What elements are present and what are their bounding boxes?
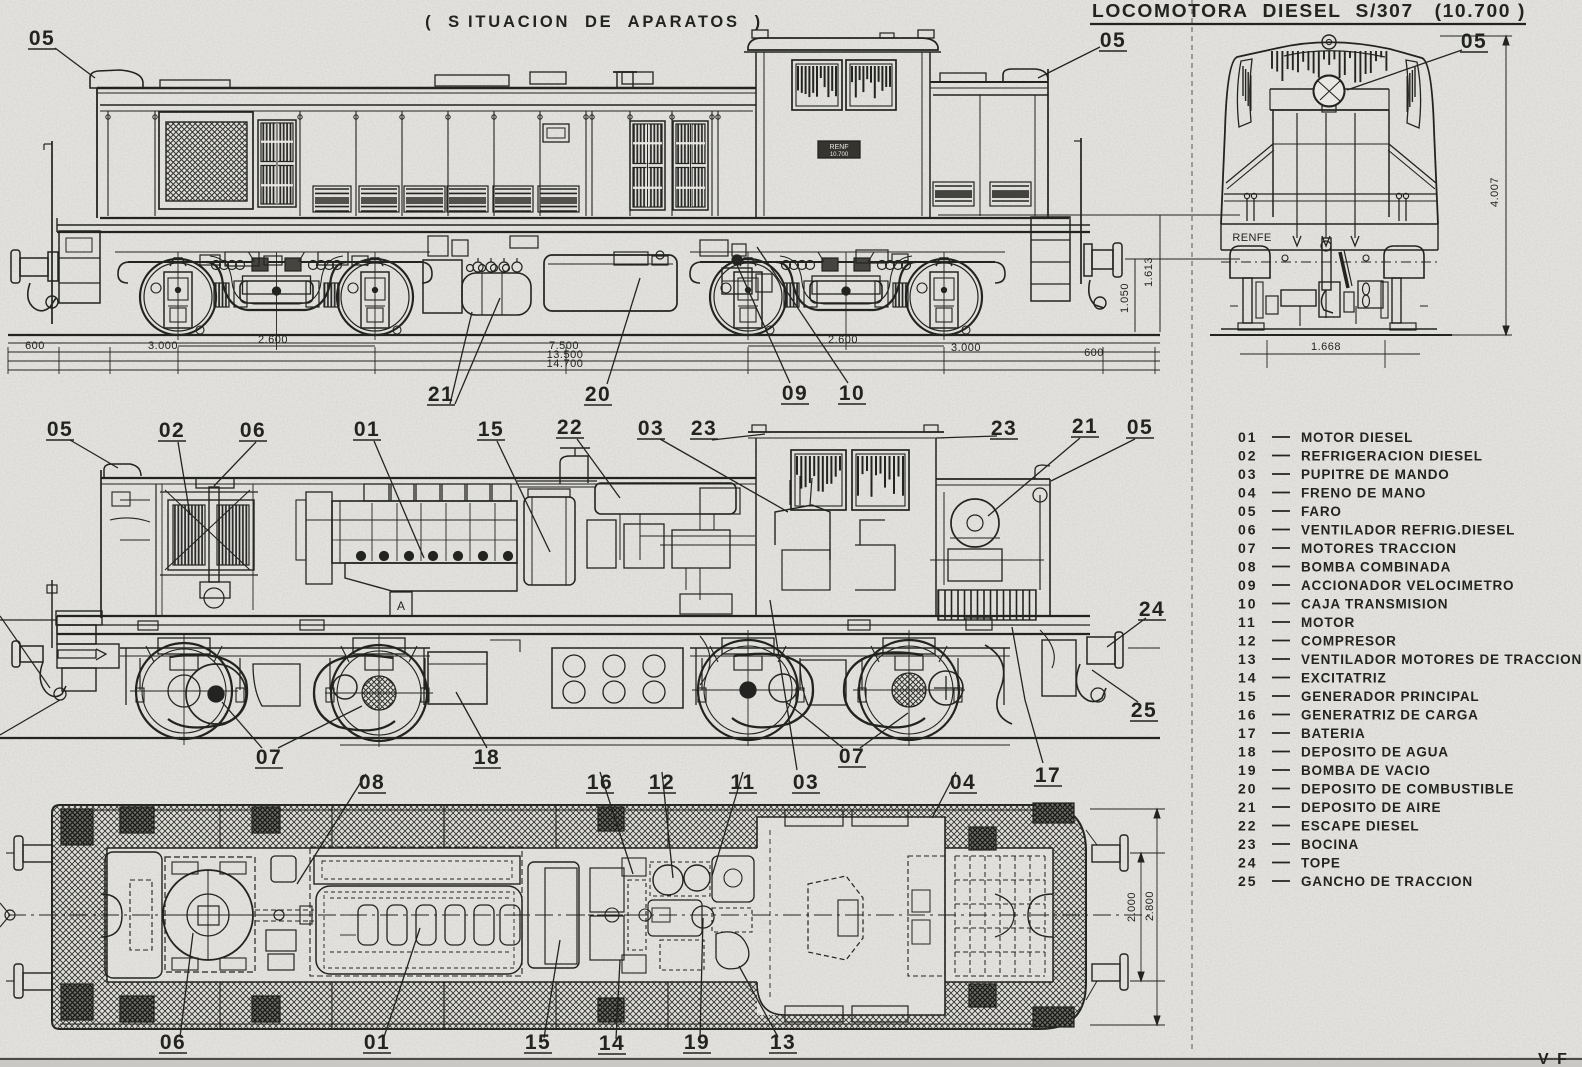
svg-text:02: 02 xyxy=(159,419,185,442)
svg-text:3.000: 3.000 xyxy=(951,342,981,354)
svg-text:17: 17 xyxy=(1035,764,1061,787)
svg-text:PUPITRE DE MANDO: PUPITRE DE MANDO xyxy=(1301,467,1450,482)
svg-text:01: 01 xyxy=(1238,429,1258,445)
svg-text:TOPE: TOPE xyxy=(1301,856,1341,871)
svg-text:12: 12 xyxy=(1238,633,1258,649)
svg-text:LOCOMOTORA DIESEL S/307 (1: LOCOMOTORA DIESEL S/307 (10.700 ) xyxy=(1092,1,1526,21)
svg-text:21: 21 xyxy=(1238,799,1258,815)
svg-text:CAJA TRANSMISION: CAJA TRANSMISION xyxy=(1301,597,1448,612)
svg-text:1.050: 1.050 xyxy=(1119,283,1131,313)
svg-text:15: 15 xyxy=(1238,688,1258,704)
svg-text:DEPOSITO DE AGUA: DEPOSITO DE AGUA xyxy=(1301,745,1449,760)
svg-text:13: 13 xyxy=(1238,651,1258,667)
svg-text:2.600: 2.600 xyxy=(258,334,288,346)
svg-text:GENERATRIZ DE CARGA: GENERATRIZ DE CARGA xyxy=(1301,708,1479,723)
svg-text:07: 07 xyxy=(256,746,282,769)
svg-text:05: 05 xyxy=(47,418,73,441)
svg-text:24: 24 xyxy=(1238,855,1258,871)
svg-text:MOTOR: MOTOR xyxy=(1301,615,1355,630)
svg-text:DEPOSITO DE COMBUSTIBLE: DEPOSITO DE COMBUSTIBLE xyxy=(1301,782,1514,797)
svg-text:VENTILADOR REFRIG.DIESEL: VENTILADOR REFRIG.DIESEL xyxy=(1301,523,1515,538)
svg-text:COMPRESOR: COMPRESOR xyxy=(1301,634,1397,649)
svg-text:600: 600 xyxy=(25,340,45,352)
svg-text:2.600: 2.600 xyxy=(828,334,858,346)
svg-text:1.613: 1.613 xyxy=(1143,257,1155,287)
svg-text:02: 02 xyxy=(1238,448,1258,464)
svg-text:05: 05 xyxy=(1100,29,1126,52)
svg-text:GANCHO DE TRACCION: GANCHO DE TRACCION xyxy=(1301,874,1473,889)
svg-text:BATERIA: BATERIA xyxy=(1301,726,1366,741)
svg-text:BOMBA COMBINADA: BOMBA COMBINADA xyxy=(1301,560,1451,575)
svg-text:11: 11 xyxy=(730,771,755,794)
svg-text:21: 21 xyxy=(1072,415,1098,438)
svg-text:06: 06 xyxy=(240,419,266,442)
svg-text:03: 03 xyxy=(1238,466,1258,482)
svg-text:15: 15 xyxy=(525,1031,551,1054)
svg-text:25: 25 xyxy=(1131,699,1157,722)
svg-text:10.700: 10.700 xyxy=(830,152,849,158)
svg-text:03: 03 xyxy=(793,771,819,794)
svg-text:600: 600 xyxy=(1084,347,1104,359)
svg-text:25: 25 xyxy=(1238,873,1258,889)
svg-text:06: 06 xyxy=(160,1031,186,1054)
svg-text:09: 09 xyxy=(782,382,808,405)
svg-text:04: 04 xyxy=(950,771,976,794)
svg-text:20: 20 xyxy=(1238,781,1258,797)
svg-text:( S ITUACION DE APARATOS ): ( S ITUACION DE APARATOS ) xyxy=(425,13,763,31)
svg-text:3.000: 3.000 xyxy=(148,340,178,352)
svg-text:13: 13 xyxy=(770,1031,796,1054)
svg-text:01: 01 xyxy=(354,418,380,441)
svg-text:24: 24 xyxy=(1139,598,1165,621)
svg-text:MOTORES TRACCION: MOTORES TRACCION xyxy=(1301,541,1457,556)
svg-text:BOCINA: BOCINA xyxy=(1301,837,1359,852)
svg-text:05: 05 xyxy=(1461,30,1487,53)
svg-text:19: 19 xyxy=(1238,762,1258,778)
svg-text:11: 11 xyxy=(1238,614,1257,630)
svg-text:06: 06 xyxy=(1238,522,1258,538)
svg-text:18: 18 xyxy=(1238,744,1258,760)
svg-text:20: 20 xyxy=(585,383,611,406)
svg-text:16: 16 xyxy=(1238,707,1258,723)
svg-text:05: 05 xyxy=(29,27,55,50)
svg-text:22: 22 xyxy=(1238,818,1258,834)
svg-text:23: 23 xyxy=(691,417,717,440)
svg-text:ACCIONADOR VELOCIMETRO: ACCIONADOR VELOCIMETRO xyxy=(1301,578,1514,593)
svg-text:FRENO DE MANO: FRENO DE MANO xyxy=(1301,486,1426,501)
svg-text:ESCAPE DIESEL: ESCAPE DIESEL xyxy=(1301,819,1419,834)
svg-text:V F: V F xyxy=(1538,1051,1569,1067)
svg-text:04: 04 xyxy=(1238,485,1258,501)
svg-text:05: 05 xyxy=(1238,503,1258,519)
svg-text:1.668: 1.668 xyxy=(1311,341,1341,353)
svg-text:14.700: 14.700 xyxy=(547,358,584,370)
svg-text:14: 14 xyxy=(1238,670,1258,686)
svg-text:10: 10 xyxy=(839,382,865,405)
svg-text:03: 03 xyxy=(638,417,664,440)
svg-text:10: 10 xyxy=(1238,596,1258,612)
svg-text:16: 16 xyxy=(587,771,613,794)
svg-text:EXCITATRIZ: EXCITATRIZ xyxy=(1301,671,1387,686)
svg-text:DEPOSITO DE AIRE: DEPOSITO DE AIRE xyxy=(1301,800,1441,815)
svg-text:01: 01 xyxy=(364,1031,390,1054)
svg-text:14: 14 xyxy=(599,1032,625,1055)
svg-text:MOTOR DIESEL: MOTOR DIESEL xyxy=(1301,430,1413,445)
svg-text:2.000: 2.000 xyxy=(1126,892,1138,922)
svg-text:17: 17 xyxy=(1238,725,1258,741)
svg-text:4.007: 4.007 xyxy=(1489,177,1501,207)
svg-text:GENERADOR PRINCIPAL: GENERADOR PRINCIPAL xyxy=(1301,689,1479,704)
svg-text:18: 18 xyxy=(474,746,500,769)
svg-text:08: 08 xyxy=(359,771,385,794)
svg-text:08: 08 xyxy=(1238,559,1258,575)
svg-text:RENFE: RENFE xyxy=(1232,232,1271,244)
svg-text:07: 07 xyxy=(839,745,865,768)
svg-text:19: 19 xyxy=(684,1031,710,1054)
svg-text:05: 05 xyxy=(1127,416,1153,439)
svg-text:23: 23 xyxy=(1238,836,1258,852)
svg-text:RENF: RENF xyxy=(829,144,848,151)
svg-text:09: 09 xyxy=(1238,577,1258,593)
svg-text:BOMBA DE VACIO: BOMBA DE VACIO xyxy=(1301,763,1431,778)
svg-text:2.800: 2.800 xyxy=(1144,891,1156,921)
svg-text:15: 15 xyxy=(478,418,504,441)
svg-text:22: 22 xyxy=(557,416,583,439)
svg-text:07: 07 xyxy=(1238,540,1258,556)
svg-text:REFRIGERACION DIESEL: REFRIGERACION DIESEL xyxy=(1301,449,1483,464)
svg-text:VENTILADOR MOTORES DE TRACCION: VENTILADOR MOTORES DE TRACCION xyxy=(1301,652,1582,667)
svg-text:FARO: FARO xyxy=(1301,504,1342,519)
svg-text:A: A xyxy=(397,599,405,613)
